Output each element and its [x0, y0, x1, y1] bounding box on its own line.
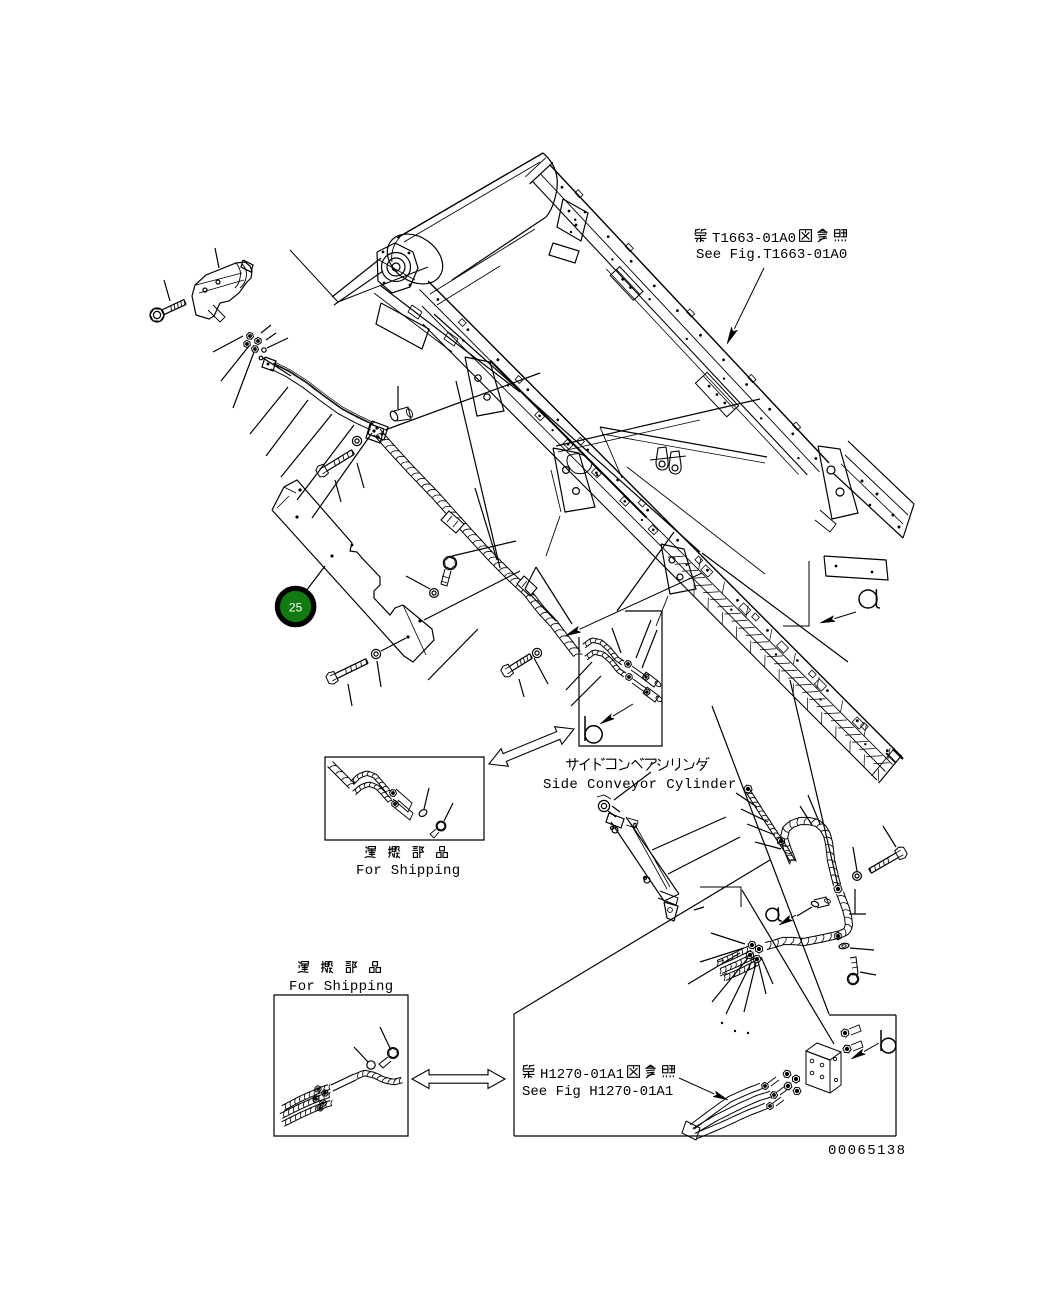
svg-text:00065138: 00065138 — [828, 1143, 906, 1159]
svg-text:For Shipping: For Shipping — [356, 863, 460, 879]
svg-text:25: 25 — [289, 601, 303, 615]
svg-text:See Fig H1270-01A1: See Fig H1270-01A1 — [522, 1084, 673, 1100]
svg-text:See Fig.T1663-01A0: See Fig.T1663-01A0 — [696, 247, 847, 263]
svg-text:H1270-01A1: H1270-01A1 — [540, 1067, 624, 1083]
svg-text:Side Conveyor Cylinder: Side Conveyor Cylinder — [543, 777, 737, 793]
svg-text:T1663-01A0: T1663-01A0 — [712, 231, 796, 247]
svg-text:For Shipping: For Shipping — [289, 979, 393, 995]
